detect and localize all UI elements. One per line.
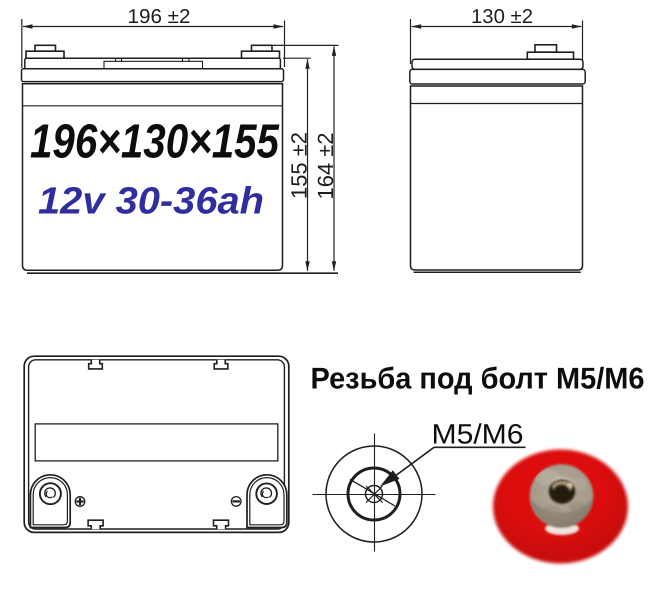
svg-text:130 ±2: 130 ±2 [471, 6, 533, 28]
svg-text:Резьба под болт М5/М6: Резьба под болт М5/М6 [311, 363, 645, 396]
svg-text:M5/M6: M5/M6 [432, 419, 524, 450]
svg-text:164 ±2: 164 ±2 [313, 133, 338, 200]
svg-text:196×130×155: 196×130×155 [30, 116, 280, 169]
svg-text:196 ±2: 196 ±2 [128, 6, 191, 28]
svg-text:155 ±2: 155 ±2 [286, 132, 311, 199]
svg-text:12v 30-36ah: 12v 30-36ah [38, 181, 264, 223]
